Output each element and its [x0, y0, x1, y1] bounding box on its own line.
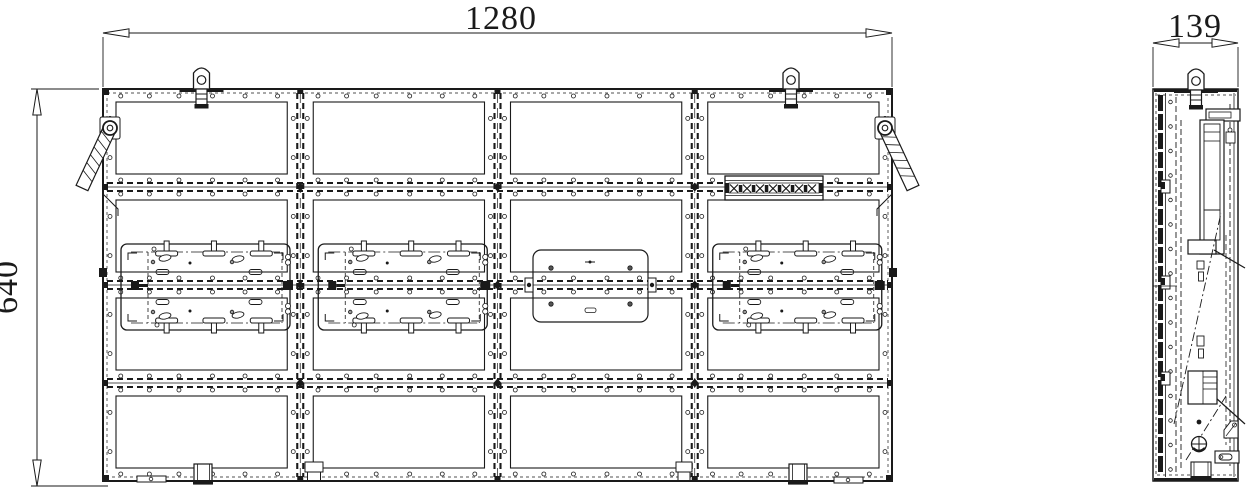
screw-hole	[489, 156, 493, 160]
screw-hole	[686, 312, 690, 316]
screw-hole	[119, 192, 123, 196]
screw-hole	[291, 116, 295, 120]
screw-hole	[638, 290, 642, 294]
screw-hole	[700, 312, 704, 316]
screw-hole	[571, 178, 575, 182]
screw-hole	[147, 472, 151, 476]
terminal-block	[1199, 272, 1204, 281]
screw-hole	[147, 192, 151, 196]
screw-hole	[408, 192, 412, 196]
screw-hole	[345, 374, 349, 378]
screw-hole	[316, 94, 320, 98]
screw-hole	[243, 290, 247, 294]
screw-hole	[711, 374, 715, 378]
screw-hole	[605, 276, 609, 280]
screw-hole	[513, 472, 517, 476]
screw-hole	[374, 388, 378, 392]
screw-hole	[883, 352, 887, 356]
screw-hole	[305, 214, 309, 218]
screw-hole	[686, 450, 690, 454]
screw-hole	[638, 374, 642, 378]
screw-hole	[542, 178, 546, 182]
screw-hole	[513, 276, 517, 280]
screw-hole	[867, 388, 871, 392]
screw-hole	[119, 178, 123, 182]
screw-hole	[867, 276, 871, 280]
screw-hole	[374, 374, 378, 378]
screw-hole	[345, 192, 349, 196]
screw-hole	[276, 374, 280, 378]
screw-hole	[835, 192, 839, 196]
screw-hole	[276, 94, 280, 98]
screw-hole	[542, 374, 546, 378]
screw-hole	[670, 388, 674, 392]
screw-hole	[243, 276, 247, 280]
screw-hole	[503, 116, 507, 120]
screw-hole	[867, 192, 871, 196]
screw-hole	[291, 254, 295, 258]
screw-hole	[210, 388, 214, 392]
screw-hole	[1169, 296, 1173, 300]
screw-hole	[503, 450, 507, 454]
screw-hole	[503, 254, 507, 258]
screw-hole	[638, 276, 642, 280]
screw-hole	[276, 290, 280, 294]
screw-hole	[835, 374, 839, 378]
screw-hole	[440, 94, 444, 98]
screw-hole	[1169, 443, 1173, 447]
screw-hole	[605, 192, 609, 196]
screw-hole	[408, 374, 412, 378]
screw-hole	[700, 156, 704, 160]
screw-hole	[147, 94, 151, 98]
screw-hole	[835, 94, 839, 98]
screw-hole	[1169, 125, 1173, 129]
screw-hole	[711, 178, 715, 182]
screw-hole	[513, 374, 517, 378]
terminal-block	[1197, 261, 1204, 269]
screw-hole	[542, 472, 546, 476]
psu-box	[1188, 371, 1217, 404]
screw-hole	[210, 178, 214, 182]
screw-hole	[305, 410, 309, 414]
screw-hole	[210, 276, 214, 280]
screw-hole	[571, 94, 575, 98]
screw-hole	[835, 276, 839, 280]
screw-hole	[670, 192, 674, 196]
screw-hole	[305, 116, 309, 120]
terminal-block	[1199, 349, 1204, 358]
screw-hole	[291, 156, 295, 160]
screw-hole	[408, 388, 412, 392]
screw-hole	[345, 472, 349, 476]
screw-hole	[1169, 394, 1173, 398]
screw-hole	[686, 116, 690, 120]
screw-hole	[802, 94, 806, 98]
screw-hole	[177, 192, 181, 196]
screw-hole	[638, 192, 642, 196]
screw-hole	[119, 388, 123, 392]
screw-hole	[503, 312, 507, 316]
screw-hole	[489, 450, 493, 454]
screw-hole	[305, 352, 309, 356]
screw-hole	[374, 472, 378, 476]
screw-hole	[108, 450, 112, 454]
screw-hole	[670, 178, 674, 182]
screw-hole	[769, 374, 773, 378]
screw-hole	[638, 388, 642, 392]
side-view	[1153, 69, 1245, 481]
screw-hole	[408, 290, 412, 294]
screw-hole	[769, 388, 773, 392]
screw-hole	[700, 450, 704, 454]
screw-hole	[513, 388, 517, 392]
screw-hole	[835, 472, 839, 476]
screw-hole	[571, 374, 575, 378]
screw-hole	[473, 388, 477, 392]
screw-hole	[883, 254, 887, 258]
screw-hole	[503, 214, 507, 218]
screw-hole	[177, 388, 181, 392]
screw-hole	[1169, 149, 1173, 153]
screw-hole	[108, 156, 112, 160]
screw-hole	[210, 94, 214, 98]
screw-hole	[835, 178, 839, 182]
screw-hole	[473, 94, 477, 98]
screw-hole	[1169, 419, 1173, 423]
screw-hole	[503, 352, 507, 356]
screw-hole	[473, 192, 477, 196]
screw-hole	[700, 214, 704, 218]
screw-hole	[316, 388, 320, 392]
screw-hole	[374, 192, 378, 196]
screw-hole	[291, 450, 295, 454]
screw-hole	[571, 472, 575, 476]
screw-hole	[700, 254, 704, 258]
screw-hole	[305, 312, 309, 316]
screw-hole	[802, 374, 806, 378]
screw-hole	[316, 192, 320, 196]
screw-hole	[867, 374, 871, 378]
screw-hole	[739, 374, 743, 378]
screw-hole	[291, 352, 295, 356]
screw-hole	[769, 94, 773, 98]
screw-hole	[503, 156, 507, 160]
screw-hole	[276, 472, 280, 476]
screw-hole	[571, 290, 575, 294]
screw-hole	[440, 374, 444, 378]
screw-hole	[769, 276, 773, 280]
screw-hole	[1169, 272, 1173, 276]
screw-hole	[440, 192, 444, 196]
screw-hole	[605, 472, 609, 476]
screw-hole	[513, 290, 517, 294]
screw-hole	[571, 276, 575, 280]
screw-hole	[276, 276, 280, 280]
screw-hole	[147, 388, 151, 392]
screw-hole	[489, 352, 493, 356]
screw-hole	[686, 254, 690, 258]
front-view	[76, 68, 919, 485]
screw-hole	[316, 178, 320, 182]
screw-hole	[473, 178, 477, 182]
screw-hole	[883, 410, 887, 414]
screw-hole	[1169, 198, 1173, 202]
screw-hole	[1169, 174, 1173, 178]
screw-hole	[542, 192, 546, 196]
screw-hole	[316, 374, 320, 378]
screw-hole	[408, 178, 412, 182]
screw-hole	[345, 178, 349, 182]
screw-hole	[305, 450, 309, 454]
screw-hole	[700, 116, 704, 120]
screw-hole	[147, 178, 151, 182]
screw-hole	[489, 214, 493, 218]
screw-hole	[835, 388, 839, 392]
screw-hole	[489, 116, 493, 120]
screw-hole	[374, 276, 378, 280]
screw-hole	[147, 374, 151, 378]
screw-hole	[440, 388, 444, 392]
screw-hole	[686, 214, 690, 218]
screw-hole	[883, 450, 887, 454]
screw-hole	[119, 94, 123, 98]
screw-hole	[638, 472, 642, 476]
screw-hole	[700, 410, 704, 414]
screw-hole	[210, 192, 214, 196]
screw-hole	[542, 276, 546, 280]
screw-hole	[1169, 100, 1173, 104]
screw-hole	[276, 388, 280, 392]
screw-hole	[374, 290, 378, 294]
screw-hole	[276, 192, 280, 196]
screw-hole	[1169, 223, 1173, 227]
screw-hole	[276, 178, 280, 182]
screw-hole	[108, 254, 112, 258]
screw-hole	[700, 352, 704, 356]
screw-hole	[769, 472, 773, 476]
screw-hole	[177, 276, 181, 280]
screw-hole	[243, 94, 247, 98]
screw-hole	[305, 254, 309, 258]
screw-hole	[345, 94, 349, 98]
screw-hole	[177, 472, 181, 476]
screw-hole	[473, 276, 477, 280]
screw-hole	[605, 290, 609, 294]
screw-hole	[291, 312, 295, 316]
screw-hole	[374, 178, 378, 182]
screw-hole	[119, 374, 123, 378]
bottom-step	[305, 462, 323, 472]
screw-hole	[210, 374, 214, 378]
screw-hole	[305, 156, 309, 160]
screw-hole	[503, 410, 507, 414]
screw-hole	[177, 290, 181, 294]
screw-hole	[108, 352, 112, 356]
top-connector	[1206, 109, 1240, 121]
screw-hole	[605, 374, 609, 378]
screw-hole	[210, 290, 214, 294]
screw-hole	[489, 254, 493, 258]
height-dimension-label: 640	[0, 260, 25, 314]
screw-hole	[883, 214, 887, 218]
screw-hole	[867, 472, 871, 476]
screw-hole	[108, 214, 112, 218]
screw-hole	[513, 192, 517, 196]
screw-hole	[345, 388, 349, 392]
screw-hole	[440, 472, 444, 476]
screw-hole	[119, 472, 123, 476]
screw-hole	[473, 290, 477, 294]
screw-hole	[1169, 321, 1173, 325]
screw-hole	[542, 94, 546, 98]
screw-hole	[867, 94, 871, 98]
screw-hole	[867, 290, 871, 294]
bottom-step	[676, 462, 692, 472]
screw-hole	[867, 178, 871, 182]
screw-hole	[473, 472, 477, 476]
screw-hole	[408, 472, 412, 476]
screw-hole	[670, 374, 674, 378]
screw-hole	[440, 290, 444, 294]
screw-hole	[571, 192, 575, 196]
screw-hole	[243, 388, 247, 392]
screw-hole	[489, 410, 493, 414]
screw-hole	[473, 374, 477, 378]
screw-hole	[883, 156, 887, 160]
screw-hole	[108, 312, 112, 316]
screw-hole	[542, 290, 546, 294]
screw-hole	[374, 94, 378, 98]
screw-hole	[408, 94, 412, 98]
screw-hole	[571, 388, 575, 392]
screw-hole	[638, 94, 642, 98]
screw-hole	[670, 290, 674, 294]
screw-hole	[711, 192, 715, 196]
screw-hole	[739, 388, 743, 392]
screw-hole	[243, 472, 247, 476]
screw-hole	[670, 276, 674, 280]
screw-hole	[1169, 468, 1173, 472]
screw-hole	[542, 388, 546, 392]
screw-hole	[489, 312, 493, 316]
screw-hole	[670, 94, 674, 98]
screw-hole	[440, 276, 444, 280]
screw-hole	[739, 94, 743, 98]
screw-hole	[1169, 345, 1173, 349]
screw-hole	[883, 312, 887, 316]
terminal-block	[1197, 336, 1204, 346]
screw-hole	[177, 178, 181, 182]
screw-hole	[177, 374, 181, 378]
screw-hole	[605, 178, 609, 182]
screw-hole	[802, 276, 806, 280]
screw-hole	[605, 94, 609, 98]
screw-hole	[408, 276, 412, 280]
screw-hole	[108, 410, 112, 414]
screw-hole	[686, 410, 690, 414]
screw-hole	[1169, 247, 1173, 251]
screw-hole	[686, 156, 690, 160]
screw-hole	[739, 472, 743, 476]
screw-hole	[769, 290, 773, 294]
screw-hole	[638, 178, 642, 182]
engineering-drawing: 1280 640 139	[0, 0, 1246, 493]
screw-hole	[291, 214, 295, 218]
screw-hole	[291, 410, 295, 414]
screw-hole	[686, 352, 690, 356]
screw-hole	[835, 290, 839, 294]
screw-hole	[711, 94, 715, 98]
screw-hole	[513, 178, 517, 182]
width-dimension-label: 1280	[465, 0, 537, 37]
screw-hole	[802, 290, 806, 294]
screw-hole	[711, 472, 715, 476]
screw-hole	[440, 178, 444, 182]
screw-hole	[243, 178, 247, 182]
screw-hole	[670, 472, 674, 476]
screw-hole	[513, 94, 517, 98]
screw-hole	[605, 388, 609, 392]
drawing-canvas: 1280 640 139	[0, 0, 1246, 493]
screw-hole	[711, 388, 715, 392]
screw-hole	[177, 94, 181, 98]
screw-hole	[243, 192, 247, 196]
screw-hole	[243, 374, 247, 378]
screw-hole	[802, 388, 806, 392]
